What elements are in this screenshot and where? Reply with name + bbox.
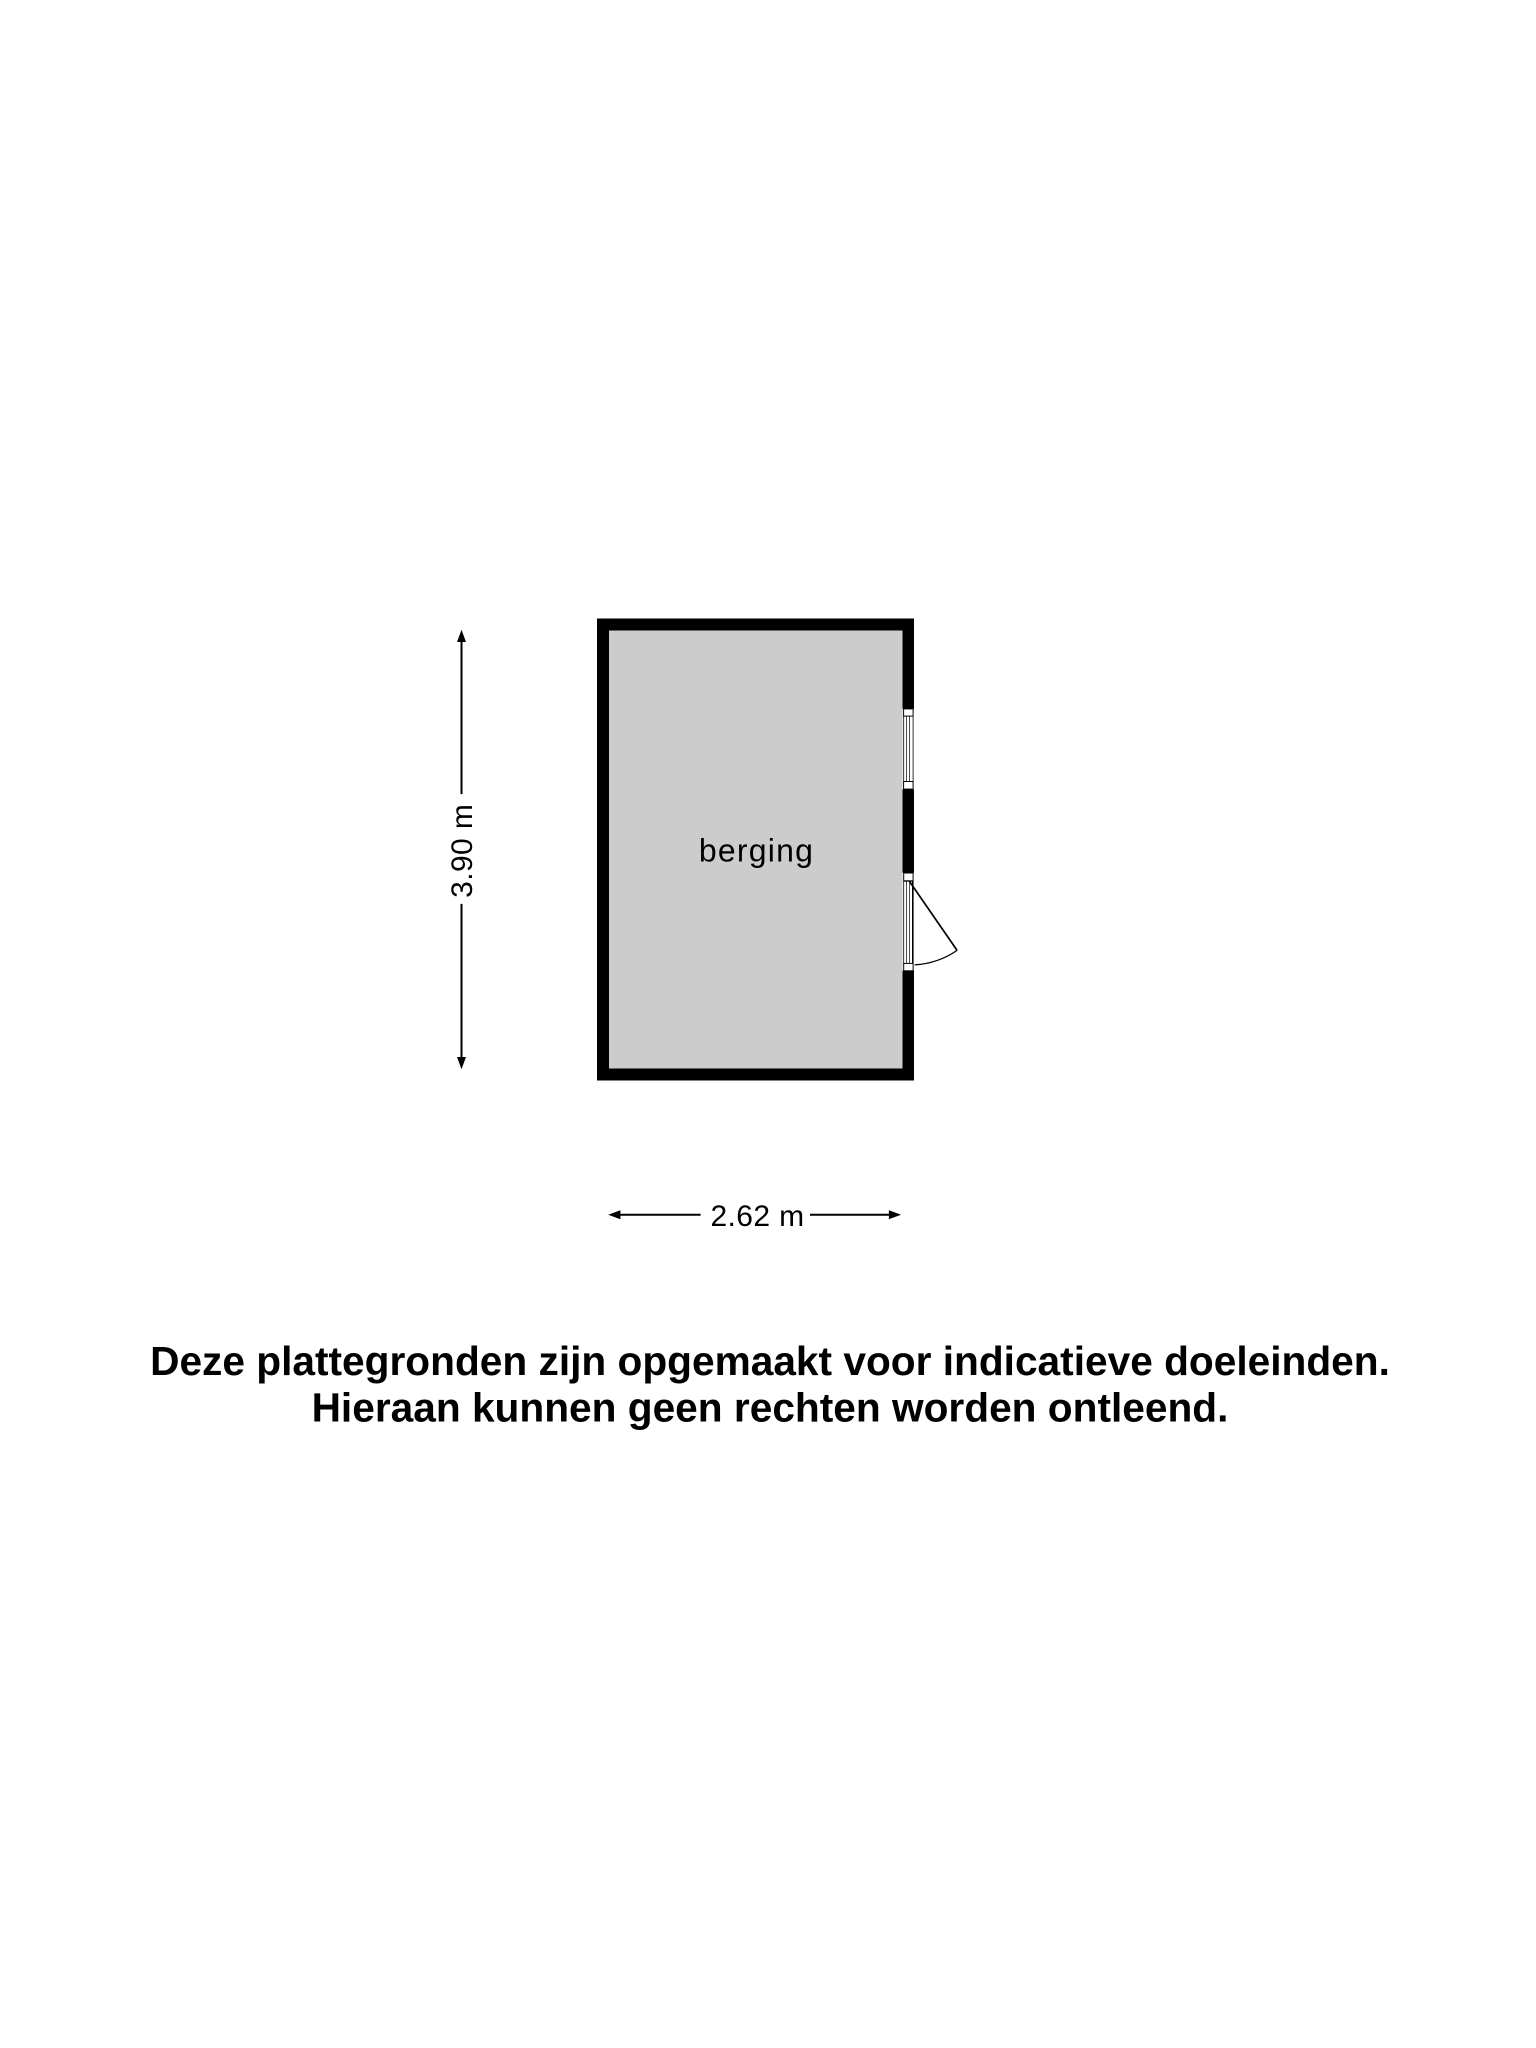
svg-text:3.90 m: 3.90 m <box>446 804 479 898</box>
svg-text:2.62 m: 2.62 m <box>710 1200 804 1233</box>
svg-text:berging: berging <box>699 833 814 869</box>
svg-text:Hieraan kunnen geen rechten wo: Hieraan kunnen geen rechten worden ontle… <box>312 1384 1229 1430</box>
svg-text:Deze plattegronden zijn opgema: Deze plattegronden zijn opgemaakt voor i… <box>150 1338 1390 1384</box>
